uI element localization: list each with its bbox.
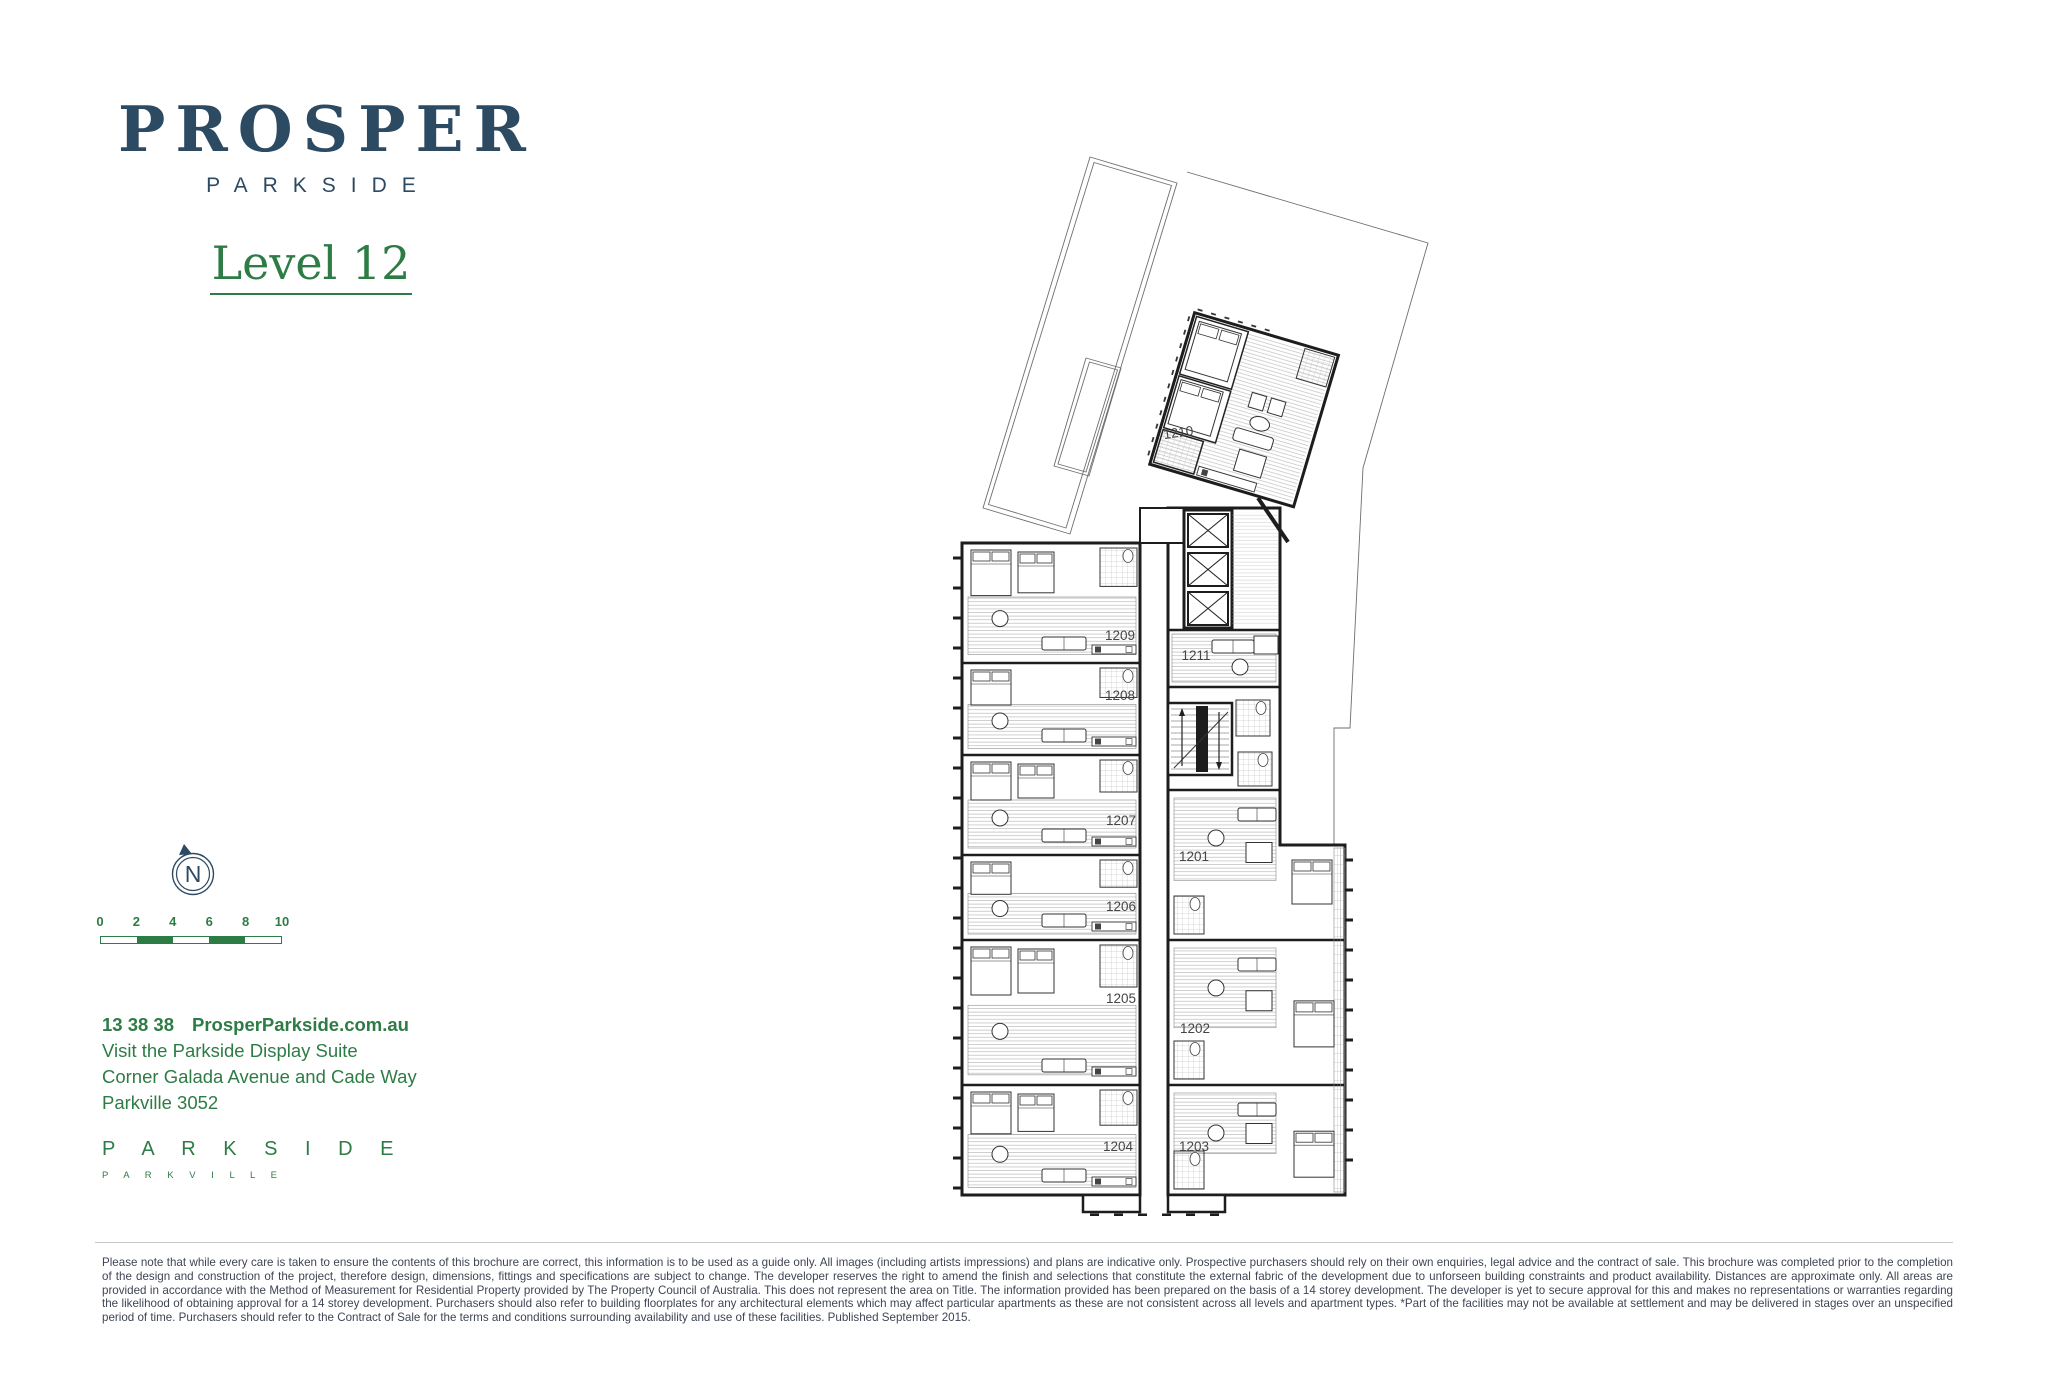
dining-table-icon [1246,843,1272,863]
sink-icon [1126,839,1132,845]
dining-table-icon [1246,991,1272,1011]
balcony-tick [953,1157,962,1160]
scale-segment [137,937,173,943]
toilet-icon [1256,702,1266,715]
balcony-tick [1345,1009,1353,1012]
wall [1168,1195,1225,1212]
table-icon [1232,659,1248,675]
pillow-icon [1020,554,1035,563]
pillow-icon [1020,951,1035,960]
pillow-icon [992,1094,1009,1103]
floor-plan: 1210120912111208120712011206120512021204… [930,100,1460,1230]
pillow-icon [973,672,990,681]
balcony-tick [953,767,962,770]
scale-label-0: 0 [96,914,103,929]
table-icon [1208,830,1224,846]
balcony-tick [953,917,962,920]
balcony-strip [1334,848,1345,1192]
toilet-icon [1123,947,1133,960]
balcony-tick [1345,1159,1353,1162]
contact-line-2: Visit the Parkside Display Suite [102,1038,417,1064]
balcony-tick [953,857,962,860]
balcony-tick [1345,1129,1353,1132]
toilet-icon [1123,762,1133,775]
unit-label-1211: 1211 [1181,648,1210,663]
toilet-icon [1123,670,1133,683]
scale-bar-track [100,936,282,944]
cooktop-icon [1095,739,1101,745]
balcony-tick [1345,919,1353,922]
brand-subtitle: PARKSIDE [118,174,504,198]
wall [1083,1195,1140,1212]
balcony-tick [1210,1214,1219,1217]
pillow-icon [1315,1133,1332,1142]
toilet-icon [1190,1043,1200,1056]
scale-label-2: 2 [133,914,140,929]
scale-segment [209,937,245,943]
table-icon [1208,980,1224,996]
cooktop-icon [1095,1179,1101,1185]
footer-logo-name: P A R K S I D E [102,1138,404,1161]
unit-label-1208: 1208 [1105,688,1135,703]
pillow-icon [1020,1096,1035,1105]
balcony-tick [953,977,962,980]
unit-label-1205: 1205 [1106,991,1136,1006]
table-icon [992,1023,1008,1039]
table-icon [992,901,1008,917]
parkside-footer-logo: P A R K S I D E P A R K V I L L E [102,1138,404,1181]
unit-label-1206: 1206 [1106,899,1136,914]
pillow-icon [1037,554,1052,563]
cooktop-icon [1095,1069,1101,1075]
footer-logo-sub: P A R K V I L L E [102,1170,404,1181]
balcony-tick [1345,979,1353,982]
balcony-tick [953,557,962,560]
pillow-icon [992,764,1009,773]
unit-label-1203: 1203 [1179,1139,1209,1154]
site-outline [1058,362,1118,472]
lobby-floor [1232,512,1278,626]
pillow-icon [992,864,1009,873]
table-icon [1208,1125,1224,1141]
pillow-icon [1037,1096,1052,1105]
phone-number: 13 38 38 [102,1014,174,1035]
balcony-tick [953,677,962,680]
pillow-icon [1315,1003,1332,1012]
unit-label-1209: 1209 [1105,628,1135,643]
balcony-tick [1162,1214,1171,1217]
balcony-tick [1186,1214,1195,1217]
balcony-tick [1345,1039,1353,1042]
balcony-tick [953,1097,962,1100]
scale-label-8: 8 [242,914,249,929]
balcony-tick [953,1127,962,1130]
scale-segment [173,937,209,943]
balcony-tick [953,1187,962,1190]
pillow-icon [1296,1003,1313,1012]
balcony-tick [1345,889,1353,892]
balcony-tick [953,797,962,800]
contact-block: 13 38 38ProsperParkside.com.au Visit the… [102,1012,417,1116]
balcony-tick [1138,1214,1147,1217]
toilet-icon [1123,862,1133,875]
pillow-icon [973,1094,990,1103]
table-icon [992,713,1008,729]
scale-label-10: 10 [275,914,289,929]
pillow-icon [992,949,1009,958]
table-icon [992,611,1008,627]
pillow-icon [1313,862,1330,871]
cooktop-icon [1095,839,1101,845]
unit-label-1202: 1202 [1180,1021,1210,1036]
pillow-icon [992,552,1009,561]
pillow-icon [973,864,990,873]
balcony-tick [953,887,962,890]
balcony-tick [1114,1214,1123,1217]
scale-label-4: 4 [169,914,176,929]
toilet-icon [1190,1153,1200,1166]
dining-table-icon [1246,1124,1272,1144]
pillow-icon [973,764,990,773]
balcony-tick [1345,949,1353,952]
balcony-tick [953,647,962,650]
pillow-icon [1037,951,1052,960]
table-icon [992,810,1008,826]
disclaimer-text: Please note that while every care is tak… [102,1256,1953,1325]
compass-letter: N [185,861,202,887]
toilet-icon [1190,898,1200,911]
pillow-icon [992,672,1009,681]
scale-bar: 0246810 [100,914,286,948]
contact-line-4: Parkville 3052 [102,1090,417,1116]
brand-logo: PROSPER PARKSIDE [118,92,504,198]
north-arrow-icon [179,844,192,855]
unit-1210-group [1146,308,1340,507]
table-icon [992,1146,1008,1162]
sink-icon [1126,647,1132,653]
cooktop-icon [1095,647,1101,653]
website: ProsperParkside.com.au [192,1014,409,1035]
balcony-tick [1090,1214,1099,1217]
sink-icon [1126,739,1132,745]
toilet-icon [1123,550,1133,563]
balcony-tick [953,1007,962,1010]
site-outline [983,157,1177,534]
balcony-tick [953,587,962,590]
north-compass: N [158,838,230,910]
balcony-tick [953,1067,962,1070]
balcony-tick [953,617,962,620]
pillow-icon [1296,1133,1313,1142]
contact-line-1: 13 38 38ProsperParkside.com.au [102,1012,417,1038]
sink-icon [1126,1069,1132,1075]
contact-line-3: Corner Galada Avenue and Cade Way [102,1064,417,1090]
pillow-icon [1020,766,1035,775]
dining-table-icon [1254,636,1278,654]
unit-label-1207: 1207 [1106,813,1136,828]
scale-segment [101,937,137,943]
pillow-icon [973,949,990,958]
scale-segment [245,937,281,943]
toilet-icon [1258,754,1268,767]
balcony-tick [953,707,962,710]
pillow-icon [1294,862,1311,871]
wall [1140,508,1184,543]
level-title-wrap: Level 12 [118,236,504,295]
sink-icon [1126,1179,1132,1185]
pillow-icon [973,552,990,561]
page-title: Level 12 [210,236,413,295]
brand-name: PROSPER [118,92,504,166]
cooktop-icon [1095,924,1101,930]
balcony-tick [1345,859,1353,862]
balcony-tick [1345,1099,1353,1102]
footer-divider [95,1242,1953,1243]
toilet-icon [1123,1092,1133,1105]
pillow-icon [1037,766,1052,775]
sink-icon [1126,924,1132,930]
balcony-tick [953,947,962,950]
balcony-tick [953,827,962,830]
balcony-tick [953,1037,962,1040]
scale-label-6: 6 [206,914,213,929]
balcony-tick [953,737,962,740]
balcony-tick [1345,1069,1353,1072]
unit-label-1201: 1201 [1179,849,1209,864]
unit-label-1204: 1204 [1103,1139,1134,1154]
